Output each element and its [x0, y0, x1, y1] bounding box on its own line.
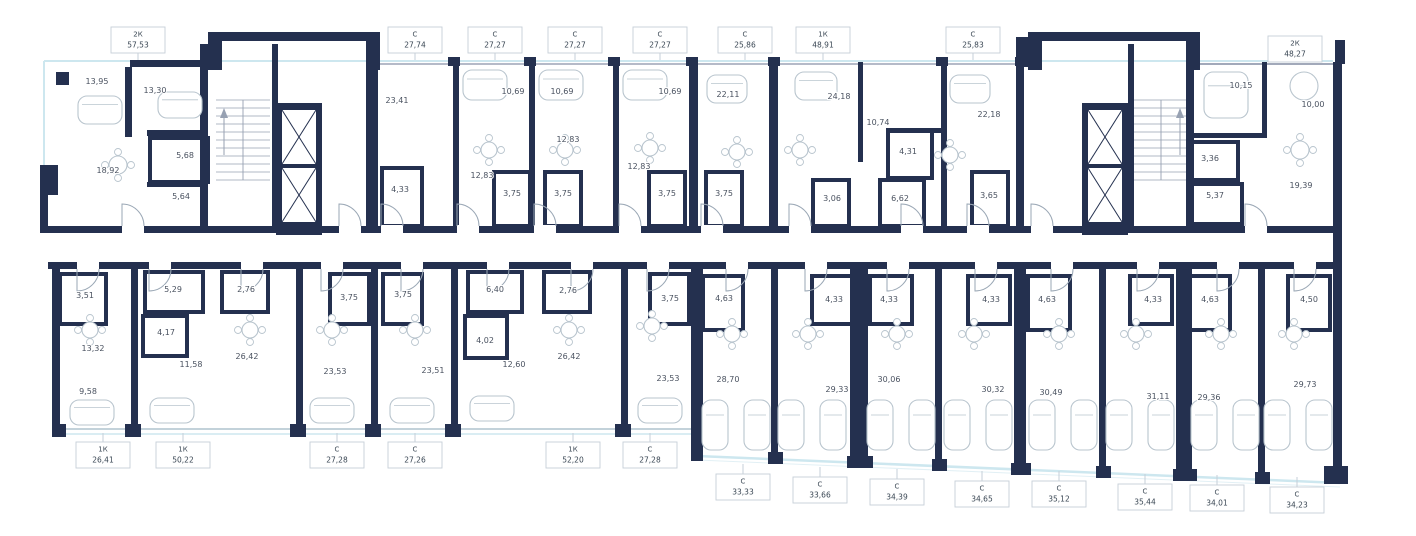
room-area: 4,50	[1300, 295, 1318, 304]
room-area: 23,51	[422, 366, 445, 375]
room-area: 4,33	[1144, 295, 1162, 304]
unit-area: 57,53	[127, 41, 149, 50]
room-area: 5,68	[176, 151, 194, 160]
unit-label: С33,66	[793, 467, 847, 503]
unit-area: 27,27	[649, 41, 671, 50]
room-area: 26,42	[236, 352, 259, 361]
unit-area: 27,74	[404, 41, 426, 50]
room-area: 4,63	[1038, 295, 1056, 304]
room-area: 5,37	[1206, 191, 1224, 200]
room-area: 5,64	[172, 192, 190, 201]
room-area: 4,02	[476, 336, 494, 345]
unit-type: С	[413, 31, 418, 39]
unit-label: С27,27	[548, 27, 602, 60]
room-area: 3,75	[658, 189, 676, 198]
unit-area: 34,65	[971, 495, 993, 504]
unit-area: 50,22	[172, 456, 194, 465]
unit-area: 27,26	[404, 456, 426, 465]
unit-label: С25,86	[718, 27, 772, 60]
unit-type: 1К	[178, 446, 187, 454]
unit-label: 1К48,91	[796, 27, 850, 60]
room-area: 3,75	[661, 294, 679, 303]
unit-type: С	[743, 31, 748, 39]
unit-area: 34,23	[1286, 501, 1308, 510]
room-area: 30,49	[1040, 388, 1063, 397]
unit-type: С	[741, 478, 746, 486]
room-area: 9,58	[79, 387, 97, 396]
unit-label: С27,28	[310, 433, 364, 468]
unit-label: 2К57,53	[111, 27, 165, 60]
room-area: 3,51	[76, 291, 94, 300]
room-area: 2,76	[559, 286, 577, 295]
room-area: 10,69	[502, 87, 525, 96]
unit-label: 1К52,20	[546, 433, 600, 468]
unit-label: С34,39	[870, 469, 924, 505]
unit-type: С	[818, 481, 823, 489]
room-area: 10,74	[867, 118, 890, 127]
unit-type: 1К	[98, 446, 107, 454]
floor-plan-canvas: 13,9513,305,6818,925,6423,414,3310,6910,…	[0, 0, 1416, 536]
unit-area: 26,41	[92, 456, 114, 465]
unit-area: 27,27	[484, 41, 506, 50]
room-area: 22,11	[717, 90, 740, 99]
room-area: 10,69	[551, 87, 574, 96]
room-area: 19,39	[1290, 181, 1313, 190]
room-area: 10,69	[659, 87, 682, 96]
unit-type: 1К	[818, 31, 827, 39]
unit-label: 2К48,27	[1268, 36, 1322, 62]
unit-type: С	[335, 446, 340, 454]
room-area: 31,11	[1147, 392, 1170, 401]
room-area: 29,33	[826, 385, 849, 394]
unit-type: С	[1143, 488, 1148, 496]
room-area: 4,33	[391, 185, 409, 194]
unit-area: 52,20	[562, 456, 584, 465]
unit-area: 25,86	[734, 41, 756, 50]
unit-type: С	[1215, 489, 1220, 497]
room-area: 29,73	[1294, 380, 1317, 389]
room-area: 6,62	[891, 194, 909, 203]
room-area: 4,63	[1201, 295, 1219, 304]
room-area: 30,32	[982, 385, 1005, 394]
room-area: 29,36	[1198, 393, 1221, 402]
unit-label: С34,01	[1190, 475, 1244, 511]
unit-type: С	[980, 485, 985, 493]
unit-type: С	[1295, 491, 1300, 499]
room-area: 12,83	[628, 162, 651, 171]
room-area: 12,83	[557, 135, 580, 144]
room-area: 10,15	[1230, 81, 1253, 90]
unit-type: С	[658, 31, 663, 39]
room-area: 3,75	[554, 189, 572, 198]
room-area: 13,95	[86, 77, 109, 86]
unit-label: С27,27	[633, 27, 687, 60]
unit-area: 35,12	[1048, 495, 1070, 504]
unit-area: 34,01	[1206, 499, 1228, 508]
unit-area: 27,27	[564, 41, 586, 50]
room-area: 23,53	[657, 374, 680, 383]
unit-area: 33,33	[732, 488, 754, 497]
room-area: 12,60	[503, 360, 526, 369]
room-area: 28,70	[717, 375, 740, 384]
room-area: 23,53	[324, 367, 347, 376]
room-area: 23,41	[386, 96, 409, 105]
unit-type: С	[1057, 485, 1062, 493]
room-area: 18,92	[97, 166, 120, 175]
unit-area: 27,28	[639, 456, 661, 465]
unit-area: 33,66	[809, 491, 831, 500]
room-area: 24,18	[828, 92, 851, 101]
room-area: 10,00	[1302, 100, 1325, 109]
unit-area: 27,28	[326, 456, 348, 465]
room-area: 4,33	[880, 295, 898, 304]
room-area: 13,32	[82, 344, 105, 353]
room-area: 3,75	[394, 290, 412, 299]
room-area: 26,42	[558, 352, 581, 361]
unit-type: С	[413, 446, 418, 454]
room-area: 13,30	[144, 86, 167, 95]
unit-label: С27,27	[468, 27, 522, 60]
room-area: 22,18	[978, 110, 1001, 119]
unit-area: 34,39	[886, 493, 908, 502]
unit-area: 48,27	[1284, 50, 1306, 59]
room-area: 2,76	[237, 285, 255, 294]
room-area: 5,29	[164, 285, 182, 294]
room-area: 4,17	[157, 328, 175, 337]
room-area: 4,63	[715, 294, 733, 303]
room-area: 6,40	[486, 285, 504, 294]
room-area: 4,33	[825, 295, 843, 304]
unit-type: 1К	[568, 446, 577, 454]
room-area: 12,83	[471, 171, 494, 180]
floor-plan: 13,9513,305,6818,925,6423,414,3310,6910,…	[0, 0, 1416, 536]
unit-type: С	[648, 446, 653, 454]
unit-label: С27,28	[623, 433, 677, 468]
unit-label: 1К26,41	[76, 433, 130, 468]
unit-label: С33,33	[716, 464, 770, 500]
unit-type: 2К	[133, 31, 142, 39]
unit-type: 2К	[1290, 40, 1299, 48]
unit-label: 1К50,22	[156, 433, 210, 468]
unit-label: С27,26	[388, 433, 442, 468]
room-area: 3,75	[715, 189, 733, 198]
room-area: 30,06	[878, 375, 901, 384]
room-area: 3,75	[340, 293, 358, 302]
unit-type: С	[895, 483, 900, 491]
room-area: 4,31	[899, 147, 917, 156]
room-area: 3,75	[503, 189, 521, 198]
unit-label: С34,65	[955, 471, 1009, 507]
room-area: 11,58	[180, 360, 203, 369]
unit-label: С27,74	[388, 27, 442, 60]
unit-type: С	[971, 31, 976, 39]
unit-area: 25,83	[962, 41, 984, 50]
unit-label: С25,83	[946, 27, 1000, 60]
room-area: 3,06	[823, 194, 841, 203]
room-area: 3,65	[980, 191, 998, 200]
room-area: 4,33	[982, 295, 1000, 304]
room-area: 3,36	[1201, 154, 1219, 163]
unit-area: 35,44	[1134, 498, 1156, 507]
unit-area: 48,91	[812, 41, 834, 50]
unit-type: С	[573, 31, 578, 39]
unit-type: С	[493, 31, 498, 39]
